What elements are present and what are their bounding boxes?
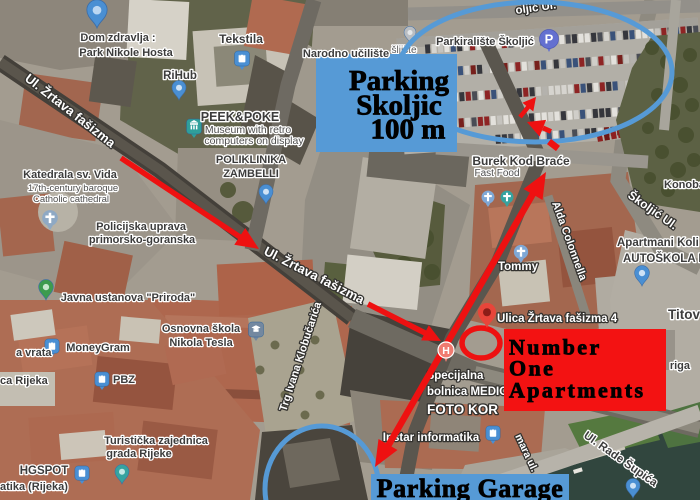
- svg-text:primorsko-goranska: primorsko-goranska: [89, 234, 196, 246]
- svg-text:H: H: [442, 345, 450, 357]
- svg-text:a vrata: a vrata: [16, 347, 52, 359]
- svg-text:Catholic cathedral: Catholic cathedral: [33, 194, 109, 205]
- svg-text:Katedrala sv. Vida: Katedrala sv. Vida: [23, 169, 118, 181]
- svg-text:ca Rijeka: ca Rijeka: [0, 375, 49, 387]
- svg-text:Osnovna škola: Osnovna škola: [162, 323, 241, 335]
- svg-text:Konoba: Konoba: [664, 179, 700, 191]
- svg-text:P: P: [545, 31, 554, 46]
- svg-text:Ulica Žrtava fašizma 4: Ulica Žrtava fašizma 4: [497, 312, 618, 325]
- svg-text:Turistička zajednica: Turistička zajednica: [104, 435, 209, 447]
- svg-text:riga: riga: [670, 360, 691, 372]
- svg-text:Apartments: Apartments: [509, 378, 645, 403]
- svg-text:Tommy: Tommy: [498, 261, 539, 273]
- svg-text:Burek Kod Braće: Burek Kod Braće: [472, 154, 570, 168]
- svg-text:100 m: 100 m: [371, 114, 446, 146]
- svg-text:Tekstila: Tekstila: [219, 32, 263, 46]
- svg-text:FOTO KOR: FOTO KOR: [427, 402, 498, 417]
- svg-text:Nikola Tesla: Nikola Tesla: [169, 337, 233, 349]
- svg-text:17th-century baroque: 17th-century baroque: [28, 183, 118, 194]
- svg-text:Javna ustanova "Priroda": Javna ustanova "Priroda": [61, 292, 196, 304]
- svg-text:Dom zdravlja :: Dom zdravlja :: [80, 32, 155, 44]
- svg-text:Specijalna: Specijalna: [427, 370, 484, 382]
- svg-text:RiHub: RiHub: [163, 70, 197, 82]
- svg-text:MoneyGram: MoneyGram: [66, 342, 130, 354]
- svg-text:grada Rijeke: grada Rijeke: [106, 448, 171, 460]
- svg-text:atika (Rijeka): atika (Rijeka): [0, 481, 68, 493]
- svg-text:Fast Food: Fast Food: [474, 168, 519, 179]
- svg-text:Narodno učilište: Narodno učilište: [303, 48, 389, 60]
- svg-text:POLIKLINIKA: POLIKLINIKA: [216, 154, 286, 166]
- svg-text:Park Nikole Hosta: Park Nikole Hosta: [79, 47, 173, 59]
- svg-text:Apartmani Koli: Apartmani Koli: [617, 237, 699, 249]
- svg-text:HGSPOT: HGSPOT: [20, 465, 69, 477]
- svg-text:PEEK&POKE: PEEK&POKE: [201, 110, 280, 124]
- svg-text:Parkiralište Školjić: Parkiralište Školjić: [436, 35, 534, 48]
- svg-text:ZAMBELLI: ZAMBELLI: [223, 168, 279, 180]
- svg-text:computers on display: computers on display: [204, 135, 304, 147]
- svg-text:Parking Garage: Parking Garage: [377, 474, 564, 500]
- svg-text:Titov: Titov: [668, 307, 700, 322]
- svg-text:AUTOŠKOLA F: AUTOŠKOLA F: [623, 252, 700, 265]
- svg-text:Policijska uprava: Policijska uprava: [96, 221, 187, 233]
- svg-text:PBZ: PBZ: [113, 374, 135, 386]
